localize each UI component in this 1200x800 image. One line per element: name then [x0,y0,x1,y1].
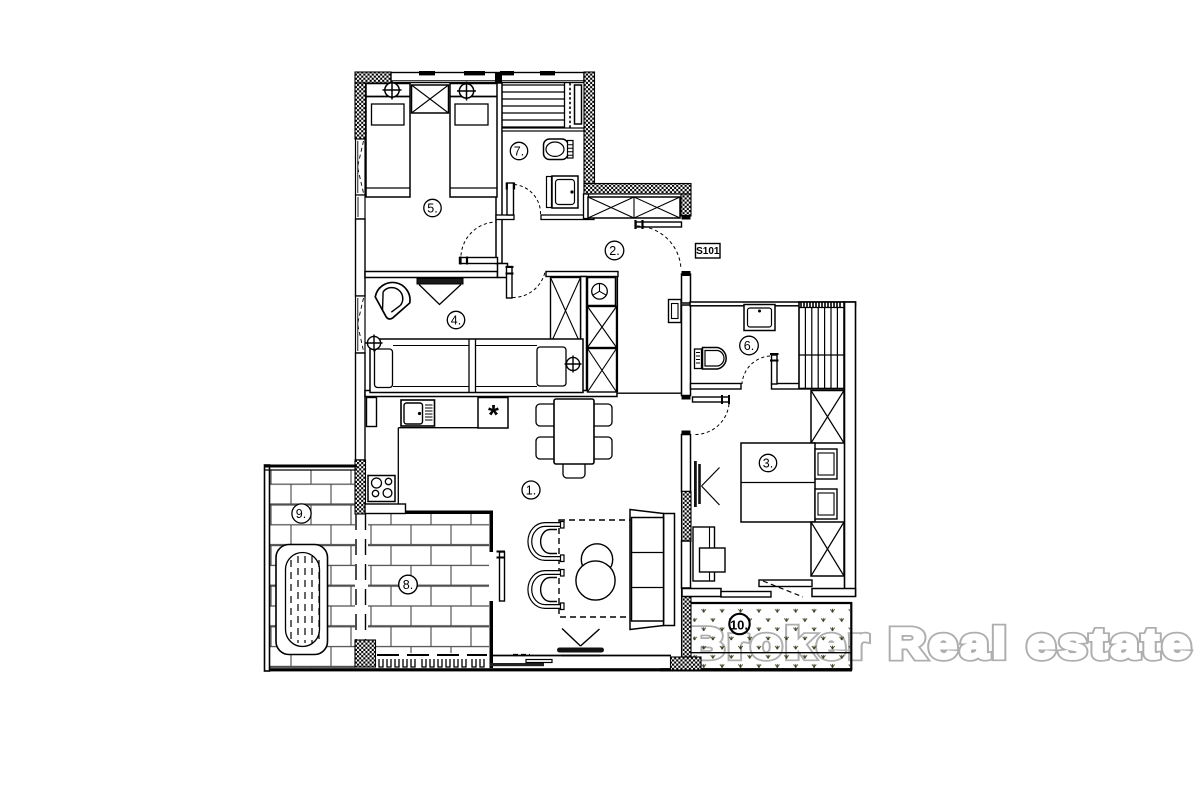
svg-text:*: * [488,399,499,430]
svg-text:5.: 5. [427,202,437,216]
svg-text:3.: 3. [763,457,773,471]
svg-text:10.: 10. [730,618,748,633]
svg-text:4.: 4. [451,314,461,328]
svg-text:2.: 2. [609,244,619,258]
svg-text:7.: 7. [514,145,524,159]
svg-text:9.: 9. [296,507,306,521]
svg-text:6.: 6. [744,339,754,353]
svg-text:8.: 8. [403,578,413,592]
svg-text:1.: 1. [526,484,536,498]
svg-text:S101: S101 [696,246,720,257]
